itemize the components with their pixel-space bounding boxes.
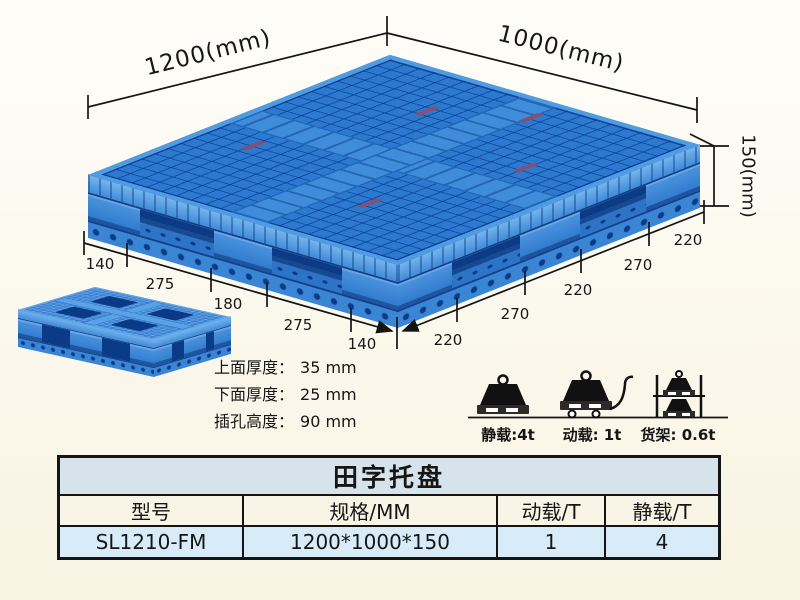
spec-table-cell-static-load: 4	[606, 527, 718, 557]
dim-label-right-seg-4: 270	[624, 256, 653, 274]
note-value: 90 mm	[300, 412, 357, 431]
note-fork-hole-height: 插孔高度：90 mm	[214, 408, 357, 435]
spec-table-cell-size: 1200*1000*150	[244, 527, 496, 557]
pallet-spec-sheet: 1200(mm) 1000(mm) 150(mm) 140 275 180 27…	[0, 0, 800, 600]
dynamic-load-label: 动载: 1t	[563, 424, 622, 445]
deck-label-slot	[240, 141, 267, 151]
note-value: 25 mm	[300, 385, 357, 404]
dim-label-right-seg-1: 220	[434, 331, 463, 349]
spec-table-header-static-load: 静载/T	[606, 496, 718, 525]
dim-label-right-seg-5: 220	[674, 231, 703, 249]
deck-label-slot	[357, 198, 384, 208]
static-load-weight-icon	[477, 376, 529, 415]
dim-label-right-seg-2: 270	[501, 305, 530, 323]
note-bottom-thickness: 下面厚度：25 mm	[214, 381, 357, 408]
spec-table-cell-model: SL1210-FM	[60, 527, 242, 557]
dim-label-right-seg-3: 220	[564, 281, 593, 299]
dim-label-150mm: 150(mm)	[738, 134, 759, 217]
dynamic-load-trolley-icon	[560, 372, 633, 418]
rack-load-shelf-icon	[653, 371, 705, 417]
deck-label-slot	[414, 106, 441, 116]
dim-label-1200mm: 1200(mm)	[142, 25, 274, 82]
dim-label-left-seg-1: 140	[86, 255, 115, 273]
note-label: 插孔高度：	[214, 412, 294, 431]
spec-table-title: 田字托盘	[60, 458, 718, 494]
static-load-label: 静载:4t	[481, 424, 535, 445]
deck-label-slot	[512, 163, 539, 173]
dim-label-1000mm: 1000(mm)	[495, 21, 627, 78]
rack-load-label: 货架: 0.6t	[641, 424, 716, 445]
dim-label-left-seg-2: 275	[146, 275, 175, 293]
note-label: 下面厚度：	[214, 385, 294, 404]
note-value: 35 mm	[300, 358, 357, 377]
thickness-notes: 上面厚度：35 mm 下面厚度：25 mm 插孔高度：90 mm	[214, 354, 357, 435]
spec-table: 田字托盘 型号 规格/MM 动载/T 静载/T SL1210-FM 1200*1…	[57, 455, 721, 560]
spec-table-header-size: 规格/MM	[244, 496, 496, 525]
dim-label-left-seg-4: 275	[284, 316, 313, 334]
note-label: 上面厚度：	[214, 358, 294, 377]
spec-table-header-model: 型号	[60, 496, 242, 525]
dim-label-left-seg-3: 180	[214, 295, 243, 313]
dim-label-left-seg-5: 140	[348, 335, 377, 353]
spec-table-header-dynamic-load: 动载/T	[498, 496, 604, 525]
note-top-thickness: 上面厚度：35 mm	[214, 354, 357, 381]
spec-table-cell-dynamic-load: 1	[498, 527, 604, 557]
